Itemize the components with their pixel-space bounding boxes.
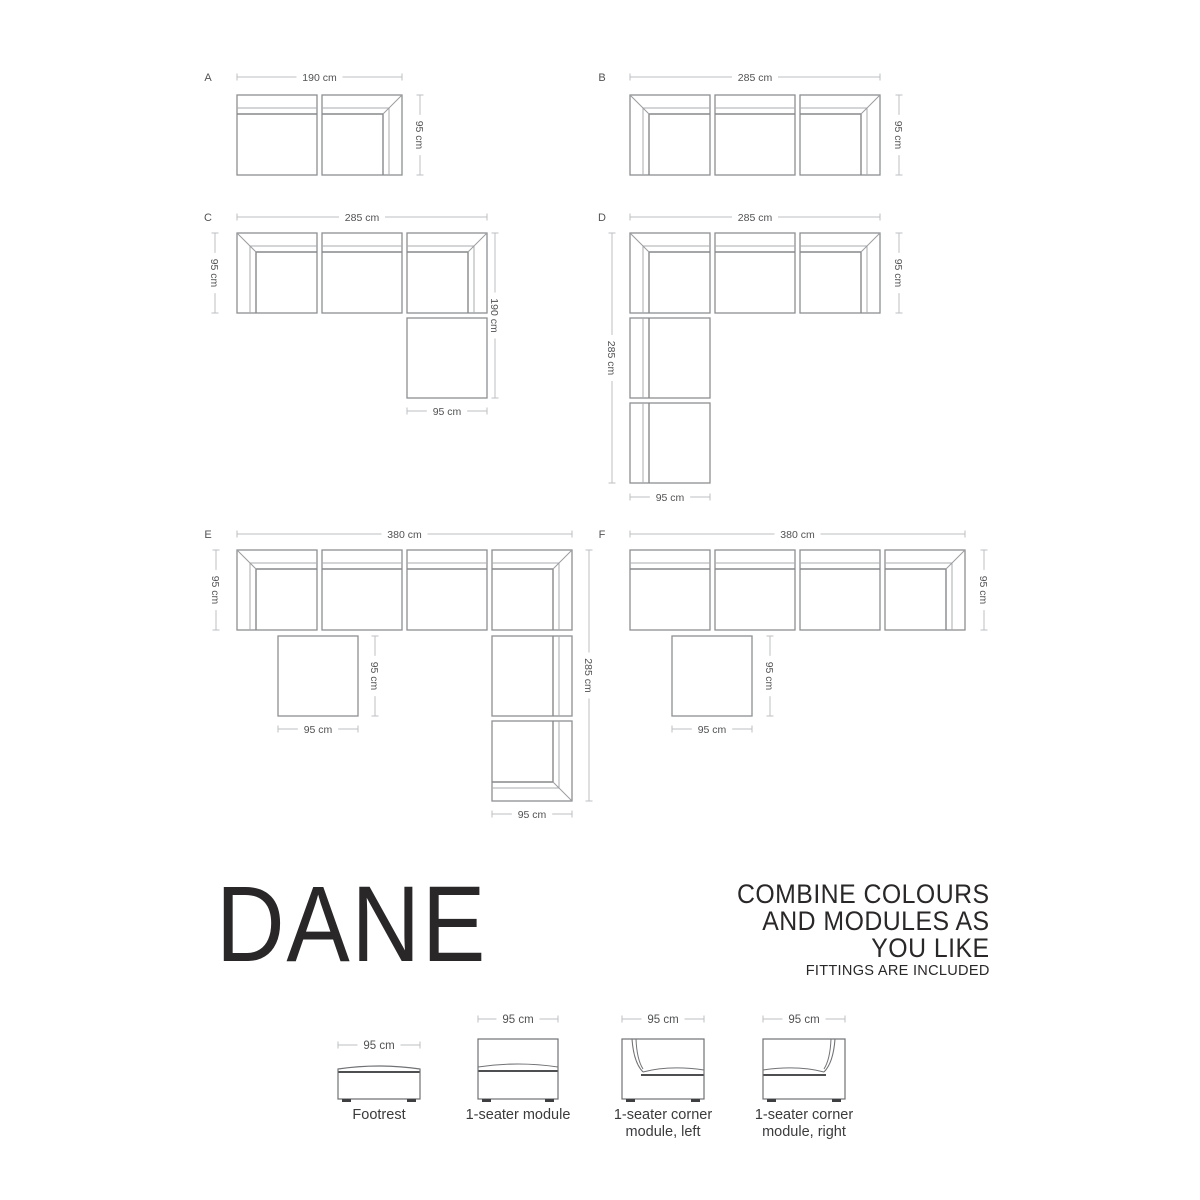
module-corner-tl xyxy=(630,233,710,313)
dimension-label: 285 cm xyxy=(738,72,773,84)
dimension: 95 cm xyxy=(763,636,777,716)
module-plain-top xyxy=(322,233,402,313)
dimension: 95 cm xyxy=(407,404,487,418)
dimension: 95 cm xyxy=(278,722,358,736)
headline-line-2: AND MODULES AS xyxy=(737,908,990,935)
dimension-label: 95 cm xyxy=(656,492,685,504)
config-C: 285 cm95 cm190 cm95 cmC xyxy=(204,210,502,418)
dimension-label: 285 cm xyxy=(582,658,594,693)
dimension: 95 cm xyxy=(413,95,427,175)
module-corner-tl xyxy=(237,233,317,313)
config-letter: D xyxy=(598,212,606,224)
legend-label-footrest: Footrest xyxy=(299,1107,459,1124)
product-title: DANE xyxy=(216,870,487,978)
config-D: 285 cm95 cm285 cm95 cmD xyxy=(598,210,906,504)
config-A: 190 cm95 cmA xyxy=(204,70,427,175)
module-corner-tr xyxy=(322,95,402,175)
module-corner-tl xyxy=(630,95,710,175)
module-plain-top xyxy=(715,550,795,630)
dimension: 95 cm xyxy=(338,1038,420,1052)
legend-label-1-seater-module: 1-seater module xyxy=(438,1107,598,1124)
module-corner-br xyxy=(492,721,572,801)
dimension-label: 95 cm xyxy=(977,576,989,605)
dimension: 95 cm xyxy=(478,1012,558,1026)
config-letter: A xyxy=(204,72,212,84)
module-plain-top xyxy=(237,95,317,175)
dimension: 95 cm xyxy=(892,95,906,175)
dimension: 95 cm xyxy=(630,490,710,504)
dimension-label: 95 cm xyxy=(892,259,904,288)
headline-line-1: COMBINE COLOURS xyxy=(737,881,990,908)
dimension-label: 95 cm xyxy=(502,1014,533,1026)
dimension-label: 380 cm xyxy=(387,529,422,541)
config-letter: F xyxy=(599,529,606,541)
module-corner-tl xyxy=(237,550,317,630)
dimension-label: 95 cm xyxy=(518,809,547,821)
module-plain-top xyxy=(715,233,795,313)
dimension-label: 95 cm xyxy=(363,1040,394,1052)
dimension-label: 190 cm xyxy=(302,72,337,84)
legend-icon-footrest-front xyxy=(338,1066,420,1102)
config-F: 380 cm95 cm95 cm95 cmF xyxy=(599,527,991,736)
dimension: 95 cm xyxy=(368,636,382,716)
config-letter: C xyxy=(204,212,212,224)
module-corner-tr xyxy=(800,233,880,313)
dimension: 95 cm xyxy=(763,1012,845,1026)
dimension-label: 95 cm xyxy=(698,724,727,736)
module-corner-tr xyxy=(492,550,572,630)
dimension: 285 cm xyxy=(630,210,880,224)
dimension-label: 95 cm xyxy=(788,1014,819,1026)
dimension: 285 cm xyxy=(630,70,880,84)
dimension: 285 cm xyxy=(582,550,596,801)
module-plain-right xyxy=(492,636,572,716)
dimension: 190 cm xyxy=(488,233,502,398)
module-corner-tr xyxy=(800,95,880,175)
module-corner-tr xyxy=(407,233,487,313)
config-E: 380 cm95 cm95 cm95 cm285 cm95 cmE xyxy=(204,527,596,821)
dimension: 95 cm xyxy=(622,1012,704,1026)
legend-label-corner-module-left: 1-seater corner module, left xyxy=(583,1107,743,1141)
config-letter: B xyxy=(598,72,605,84)
module-plain-top xyxy=(800,550,880,630)
module-footrest xyxy=(278,636,358,716)
module-plain-top xyxy=(715,95,795,175)
dimension: 95 cm xyxy=(977,550,991,630)
module-plain-left xyxy=(630,403,710,483)
dimension-label: 95 cm xyxy=(647,1014,678,1026)
dimension: 95 cm xyxy=(208,233,222,313)
dimension-label: 95 cm xyxy=(368,662,380,691)
config-letter: E xyxy=(204,529,211,541)
module-footrest xyxy=(672,636,752,716)
module-footrest xyxy=(407,318,487,398)
config-B: 285 cm95 cmB xyxy=(598,70,906,175)
headline: COMBINE COLOURS AND MODULES AS YOU LIKE xyxy=(737,881,990,962)
headline-line-3: YOU LIKE xyxy=(737,935,990,962)
legend-label-corner-module-right: 1-seater corner module, right xyxy=(724,1107,884,1141)
dimension-label: 190 cm xyxy=(488,298,500,333)
legend-icon-seat-front xyxy=(478,1039,558,1102)
dimension: 95 cm xyxy=(672,722,752,736)
legend: 95 cm95 cm95 cm95 cm xyxy=(338,1012,845,1102)
dimension: 285 cm xyxy=(237,210,487,224)
dimension-label: 95 cm xyxy=(304,724,333,736)
dimension-label: 95 cm xyxy=(413,121,425,150)
dimension-label: 95 cm xyxy=(209,576,221,605)
dimension-label: 95 cm xyxy=(433,406,462,418)
dimension: 95 cm xyxy=(492,807,572,821)
dimension: 380 cm xyxy=(237,527,572,541)
dimension-label: 380 cm xyxy=(780,529,815,541)
dimension: 95 cm xyxy=(209,550,223,630)
dimension-label: 285 cm xyxy=(605,341,617,376)
subheadline-fittings: FITTINGS ARE INCLUDED xyxy=(806,962,990,979)
module-plain-top xyxy=(630,550,710,630)
dimension-label: 95 cm xyxy=(208,259,220,288)
legend-icon-corner-left-front xyxy=(622,1039,704,1102)
dimension-label: 95 cm xyxy=(763,662,775,691)
module-corner-tr xyxy=(885,550,965,630)
dimension: 285 cm xyxy=(605,233,619,483)
dimension: 190 cm xyxy=(237,70,402,84)
module-plain-top xyxy=(322,550,402,630)
module-diagrams: 190 cm95 cmA285 cm95 cmB285 cm95 cm190 c… xyxy=(0,0,1200,1200)
dimension-label: 285 cm xyxy=(345,212,380,224)
module-plain-left xyxy=(630,318,710,398)
dimension: 380 cm xyxy=(630,527,965,541)
dimension-label: 285 cm xyxy=(738,212,773,224)
dimension-label: 95 cm xyxy=(892,121,904,150)
dimension: 95 cm xyxy=(892,233,906,313)
spec-sheet: 190 cm95 cmA285 cm95 cmB285 cm95 cm190 c… xyxy=(0,0,1200,1200)
module-plain-top xyxy=(407,550,487,630)
legend-icon-corner-right-front xyxy=(763,1039,845,1102)
